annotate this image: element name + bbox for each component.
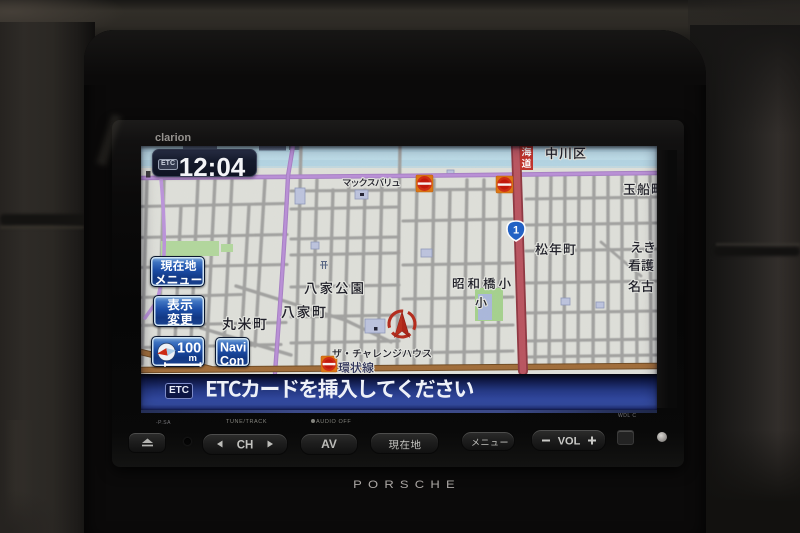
- svg-text:CH: CH: [237, 440, 254, 452]
- svg-text:VOL: VOL: [558, 436, 581, 448]
